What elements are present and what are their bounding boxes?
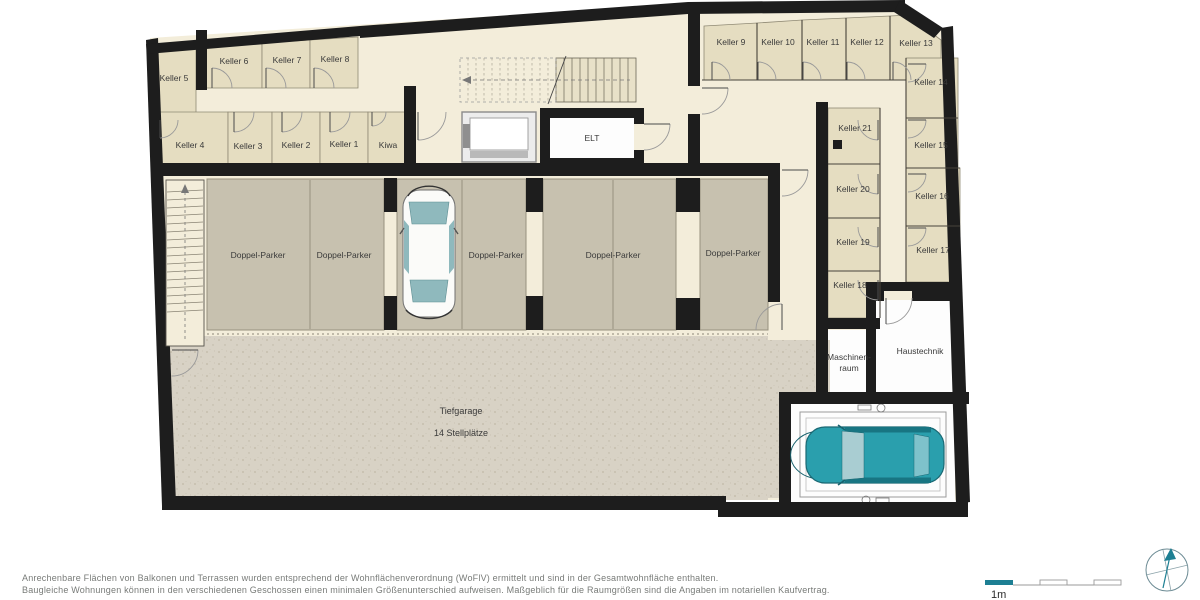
west-stairwell — [166, 180, 204, 346]
label-keller3: Keller 3 — [234, 141, 263, 151]
label-keller16: Keller 16 — [915, 191, 949, 201]
label-keller1: Keller 1 — [330, 139, 359, 149]
label-keller2: Keller 2 — [282, 140, 311, 150]
room-keller-3 — [228, 112, 272, 164]
label-keller14: Keller 14 — [914, 77, 948, 87]
room-keller-4 — [158, 112, 228, 164]
label-keller20: Keller 20 — [836, 184, 870, 194]
label-keller5: Keller 5 — [160, 73, 189, 83]
label-doppelparker-1: Doppel-Parker — [231, 250, 286, 260]
label-maschinenraum-2: raum — [839, 363, 858, 373]
label-keller21: Keller 21 — [838, 123, 872, 133]
label-stellplaetze: 14 Stellplätze — [434, 428, 488, 438]
label-maschinenraum-1: Maschinen- — [827, 352, 871, 362]
label-keller13: Keller 13 — [899, 38, 933, 48]
label-haustechnik: Haustechnik — [897, 346, 945, 356]
label-elt: ELT — [585, 133, 600, 143]
label-doppelparker-2: Doppel-Parker — [317, 250, 372, 260]
room-keller-11 — [802, 18, 846, 80]
room-keller-12 — [846, 16, 890, 80]
compass — [1146, 548, 1188, 591]
label-keller17: Keller 17 — [916, 245, 950, 255]
elevator — [462, 112, 536, 162]
label-keller4: Keller 4 — [176, 140, 205, 150]
label-keller18: Keller 18 — [833, 280, 867, 290]
label-keller11: Keller 11 — [807, 37, 840, 47]
keller21-column — [833, 140, 842, 149]
room-keller-10 — [757, 20, 802, 80]
drive-aisle — [170, 334, 830, 500]
label-keller6: Keller 6 — [220, 56, 249, 66]
label-doppelparker-4: Doppel-Parker — [586, 250, 641, 260]
room-kiwa — [368, 112, 405, 164]
disclaimer-line1: Anrechenbare Flächen von Balkonen und Te… — [22, 573, 882, 585]
label-kiwa: Kiwa — [379, 140, 398, 150]
label-doppelparker-3: Doppel-Parker — [469, 250, 524, 260]
label-tiefgarage: Tiefgarage — [440, 406, 483, 416]
scale-bar: 1m — [985, 580, 1121, 600]
disclaimer: Anrechenbare Flächen von Balkonen und Te… — [22, 573, 882, 596]
label-keller9: Keller 9 — [717, 37, 746, 47]
room-keller-2 — [272, 112, 320, 164]
floorplan-drawing: Keller 5 Keller 6 Keller 7 Keller 8 Kell… — [0, 0, 1200, 600]
label-doppelparker-5: Doppel-Parker — [706, 248, 761, 258]
floorplan-page: Keller 5 Keller 6 Keller 7 Keller 8 Kell… — [0, 0, 1200, 600]
label-keller7: Keller 7 — [273, 55, 302, 65]
teal-car — [791, 425, 944, 485]
room-keller-1 — [320, 112, 368, 164]
label-keller10: Keller 10 — [761, 37, 795, 47]
disclaimer-line2: Baugleiche Wohnungen können in den versc… — [22, 585, 882, 597]
label-keller8: Keller 8 — [321, 54, 350, 64]
white-car — [400, 186, 458, 318]
label-keller12: Keller 12 — [850, 37, 884, 47]
label-keller15: Keller 15 — [914, 140, 948, 150]
scale-label: 1m — [991, 589, 1006, 600]
room-keller-21 — [828, 108, 880, 164]
label-keller19: Keller 19 — [836, 237, 870, 247]
